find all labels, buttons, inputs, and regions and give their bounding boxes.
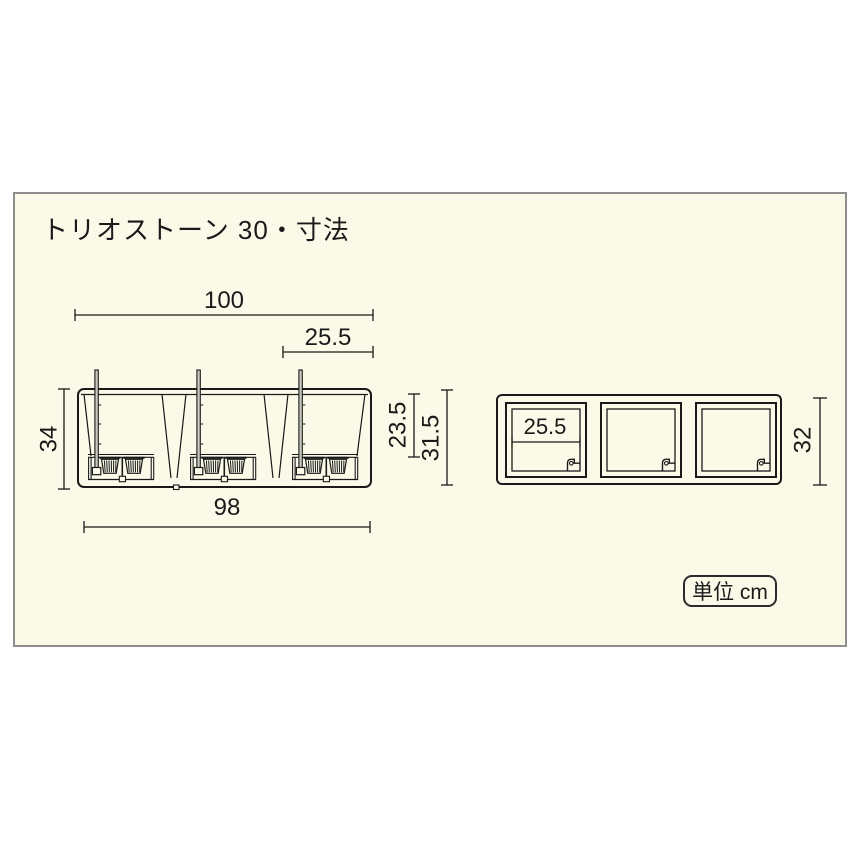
dim-overall-depth: 32 [789, 398, 827, 485]
dim-pot-depth-label: 23.5 [384, 402, 411, 449]
dim-base-width: 98 [84, 494, 370, 533]
dim-body-height-label: 31.5 [417, 415, 444, 462]
dim-pot-depth: 23.5 [384, 394, 420, 457]
dim-overall-height: 34 [35, 389, 70, 489]
dim-opening-width-label: 25.5 [524, 414, 567, 439]
dim-overall-width: 100 [75, 287, 373, 321]
dim-overall-depth-label: 32 [789, 427, 816, 454]
front-view-drawing [78, 370, 371, 490]
dim-overall-height-label: 34 [35, 426, 62, 453]
dim-body-height: 31.5 [417, 390, 453, 485]
unit-label: 単位 cm [692, 576, 768, 606]
diagram-panel: トリオストーン 30・寸法 [13, 192, 847, 647]
dim-pot-width: 25.5 [283, 324, 373, 358]
dim-overall-width-label: 100 [204, 287, 244, 314]
page: { "title": "トリオストーン 30・寸法", "unit_box": … [0, 0, 857, 857]
drain-notch [174, 485, 180, 490]
dim-base-width-label: 98 [214, 494, 241, 521]
dim-pot-width-label: 25.5 [305, 324, 352, 351]
unit-box: 単位 cm [683, 575, 777, 607]
plan-view-drawing [497, 395, 781, 484]
